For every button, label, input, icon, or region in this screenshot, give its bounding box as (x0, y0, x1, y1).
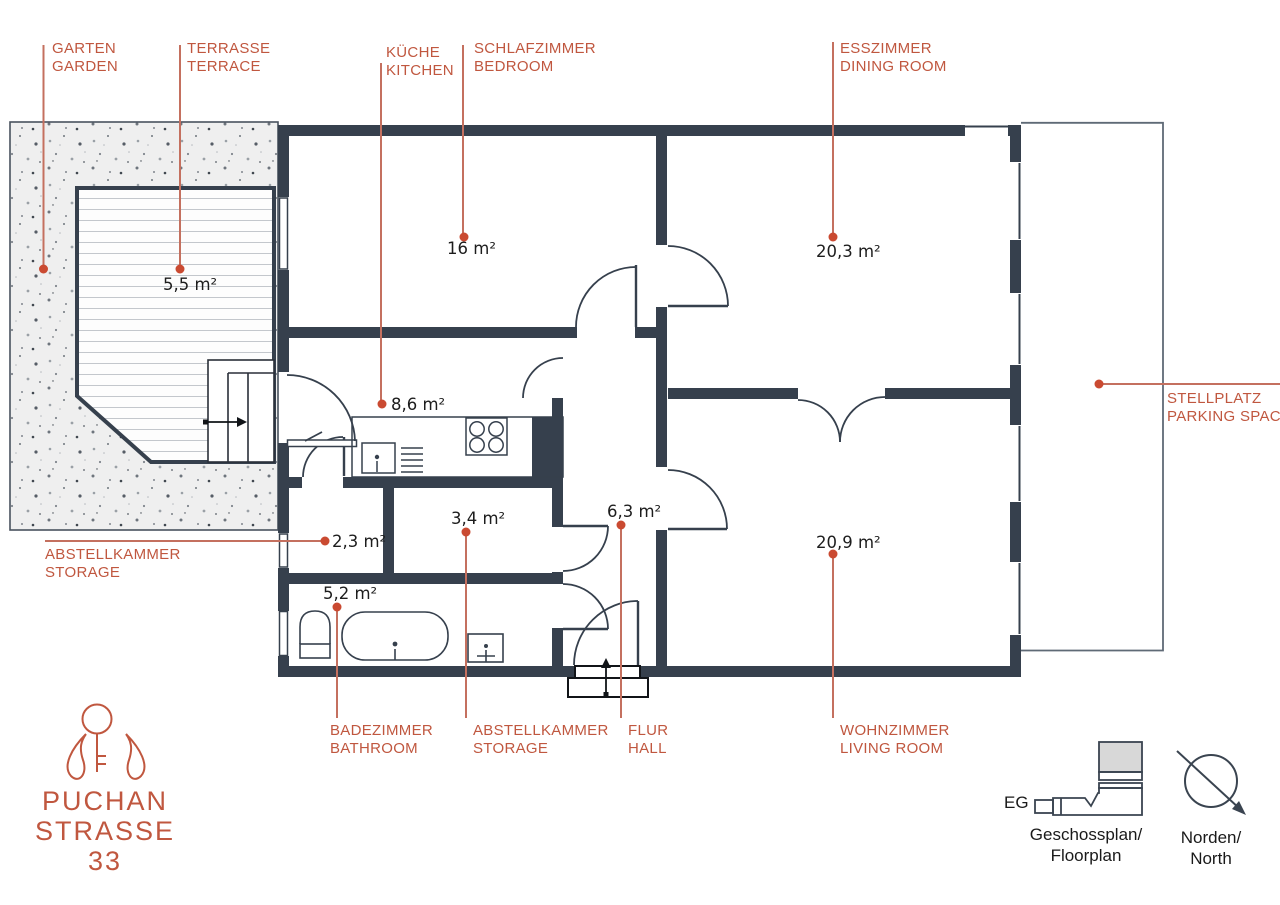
label-dining-en: DINING ROOM (840, 58, 947, 76)
label-storage-left-de: ABSTELLKAMMER (45, 546, 181, 564)
living-door (668, 470, 727, 529)
bathroom-sink (468, 634, 503, 662)
area-terrace: 5,5 m² (163, 275, 217, 294)
label-kitchen-de: KÜCHE (386, 44, 454, 62)
label-bathroom-de: BADEZIMMER (330, 722, 433, 740)
label-dining-de: ESSZIMMER (840, 40, 947, 58)
area-dining: 20,3 m² (816, 242, 881, 261)
area-bedroom: 16 m² (447, 239, 496, 258)
area-storage-small: 2,3 m² (332, 532, 386, 551)
bathroom-door (563, 584, 608, 629)
north-compass-icon (1177, 751, 1246, 815)
stove (466, 418, 507, 455)
floorplan-page: GARTEN GARDEN TERRASSE TERRACE KÜCHE KIT… (0, 0, 1280, 905)
label-parking-en: PARKING SPACES (1167, 408, 1280, 426)
label-hall: FLUR HALL (628, 722, 668, 758)
legend-floorplan-en: Floorplan (1016, 845, 1156, 866)
label-living-en: LIVING ROOM (840, 740, 950, 758)
label-bathroom-en: BATHROOM (330, 740, 433, 758)
label-living: WOHNZIMMER LIVING ROOM (840, 722, 950, 758)
logo-key-icon (68, 705, 145, 779)
kitchen-terrace-door (287, 375, 357, 447)
label-kitchen-en: KITCHEN (386, 62, 454, 80)
floorplan-section-icon (1035, 742, 1142, 815)
label-terrace: TERRASSE TERRACE (187, 40, 270, 76)
kitchen-entry-door (523, 358, 563, 398)
kitchen-fixtures (352, 417, 563, 477)
bedroom-door (576, 265, 636, 327)
logo-line-1: PUCHAN (30, 786, 180, 816)
label-parking: STELLPLATZ PARKING SPACES (1167, 390, 1280, 426)
legend-floorplan-de: Geschossplan/ (1016, 824, 1156, 845)
label-garden: GARTEN GARDEN (52, 40, 118, 76)
logo-line-2: STRASSE (30, 816, 180, 846)
label-storage-left-en: STORAGE (45, 564, 181, 582)
logo-left-loop (68, 734, 86, 779)
parking-area (1021, 123, 1163, 651)
kitchen-sink (362, 443, 395, 473)
dish-rack (401, 448, 423, 472)
bedroom-terrace-door (280, 198, 288, 269)
dining-door (668, 246, 728, 306)
label-dining: ESSZIMMER DINING ROOM (840, 40, 947, 76)
label-kitchen: KÜCHE KITCHEN (386, 44, 454, 80)
area-bathroom: 5,2 m² (323, 584, 377, 603)
bathroom-fixtures (300, 611, 503, 662)
label-garden-de: GARTEN (52, 40, 118, 58)
label-parking-de: STELLPLATZ (1167, 390, 1280, 408)
area-kitchen: 8,6 m² (391, 395, 445, 414)
terrace-stairs (203, 360, 274, 462)
toilet (300, 611, 330, 658)
label-storage-bottom-de: ABSTELLKAMMER (473, 722, 609, 740)
storage-window (280, 534, 288, 567)
entrance-steps (568, 658, 648, 697)
label-bedroom-de: SCHLAFZIMMER (474, 40, 596, 58)
label-terrace-de: TERRASSE (187, 40, 270, 58)
legend-eg: EG (1004, 793, 1029, 813)
area-hall: 6,3 m² (607, 502, 661, 521)
label-hall-de: FLUR (628, 722, 668, 740)
label-hall-en: HALL (628, 740, 668, 758)
bathtub (342, 612, 448, 660)
area-storage-mid: 3,4 m² (451, 509, 505, 528)
label-storage-bottom: ABSTELLKAMMER STORAGE (473, 722, 609, 758)
area-living: 20,9 m² (816, 533, 881, 552)
label-garden-en: GARDEN (52, 58, 118, 76)
floorplan-drawing (0, 0, 1280, 905)
label-storage-bottom-en: STORAGE (473, 740, 609, 758)
walls (278, 125, 1021, 677)
label-living-de: WOHNZIMMER (840, 722, 950, 740)
entrance-door (574, 601, 638, 665)
bathroom-window (280, 612, 288, 656)
label-bedroom-en: BEDROOM (474, 58, 596, 76)
storage-mid-door (563, 526, 608, 571)
label-terrace-en: TERRACE (187, 58, 270, 76)
legend-north-de: Norden/ (1161, 827, 1261, 848)
legend-north-en: North (1161, 848, 1261, 869)
legend-north: Norden/ North (1161, 827, 1261, 869)
legend-floorplan: Geschossplan/ Floorplan (1016, 824, 1156, 866)
logo-right-loop (126, 734, 144, 779)
double-door (798, 397, 885, 442)
label-bathroom: BADEZIMMER BATHROOM (330, 722, 433, 758)
label-storage-left: ABSTELLKAMMER STORAGE (45, 546, 181, 582)
logo-wordmark: PUCHAN STRASSE 33 (30, 786, 180, 876)
logo-line-3: 33 (30, 846, 180, 876)
label-bedroom: SCHLAFZIMMER BEDROOM (474, 40, 596, 76)
